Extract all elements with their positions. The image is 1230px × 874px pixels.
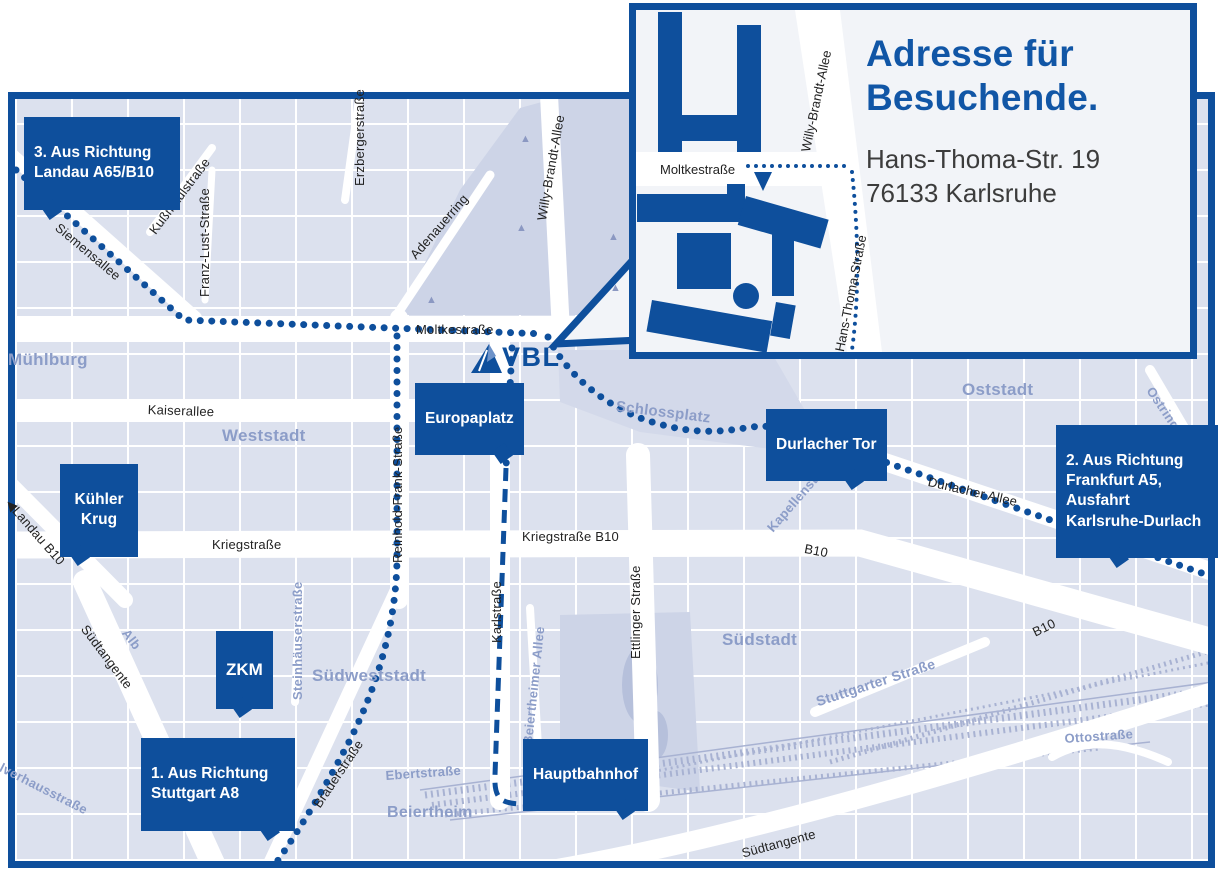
street-label-kaiserallee: Kaiserallee bbox=[147, 402, 214, 419]
district-label-schlossplatz: Schlossplatz bbox=[615, 398, 712, 426]
badge-pointer bbox=[69, 545, 90, 566]
page: { "inset": { "title": "Adresse für\nBesu… bbox=[0, 0, 1230, 874]
route2-badge: 2. Aus Richtung Frankfurt A5, Ausfahrt K… bbox=[1056, 425, 1218, 558]
street-label-brauerstrasse: Brauerstraße bbox=[310, 737, 366, 810]
district-label-weststadt: Weststadt bbox=[222, 426, 306, 446]
badge-pointer bbox=[231, 697, 252, 718]
zkm-badge-label: ZKM bbox=[226, 660, 263, 679]
street-label-landau-b10: ◀Landau B10 bbox=[2, 496, 68, 569]
street-label-siemensallee: Siemensallee bbox=[52, 220, 123, 283]
tree-icon: ▲ bbox=[426, 294, 437, 306]
badge-pointer bbox=[1108, 547, 1129, 568]
inset-street-label-moltkestrasse: Moltkestraße bbox=[660, 162, 735, 177]
street-label-stuttgarter-strasse: Stuttgarter Straße bbox=[814, 656, 937, 710]
badge-pointer bbox=[41, 199, 62, 220]
europaplatz-badge-label: Europaplatz bbox=[425, 410, 514, 427]
badge-pointer bbox=[259, 820, 280, 841]
street-label-ottostrasse: Ottostraße bbox=[1064, 726, 1134, 746]
label-alb-river: Alb bbox=[119, 626, 144, 652]
street-label-adenauerring: Adenauerring bbox=[407, 191, 471, 262]
street-label-steinhaeuserstrasse: Steinhäuserstraße bbox=[290, 581, 305, 700]
street-label-pulverhausstrasse: lverhausstraße bbox=[0, 760, 90, 817]
zkm-badge: ZKM bbox=[216, 631, 273, 709]
street-label-b10-south: B10 bbox=[1030, 616, 1058, 640]
route1-badge: 1. Aus Richtung Stuttgart A8 bbox=[141, 738, 295, 831]
hauptbahnhof-badge-label: Hauptbahnhof bbox=[533, 766, 638, 783]
inset-title: Adresse für Besuchende. bbox=[866, 32, 1099, 119]
street-label-kriegstrasse: Kriegstraße bbox=[212, 537, 281, 552]
durlacher-tor-badge-label: Durlacher Tor bbox=[776, 436, 877, 453]
durlacher-tor-badge: Durlacher Tor bbox=[766, 409, 887, 481]
badge-pointer bbox=[843, 469, 864, 490]
vbl-logo-text: VBL bbox=[502, 342, 561, 373]
street-label-franz-lust-strasse: Franz-Lust-Straße bbox=[197, 188, 212, 297]
tree-icon: ▲ bbox=[608, 231, 619, 243]
street-label-durlacher-allee: Durlacher Allee bbox=[927, 474, 1019, 509]
street-label-beiertheimer-allee: Beiertheimer Allee bbox=[520, 626, 547, 746]
badge-pointer bbox=[614, 799, 635, 820]
street-label-erzbergerstrasse: Erzbergerstraße bbox=[352, 89, 367, 186]
tree-icon: ▲ bbox=[516, 222, 527, 234]
district-label-oststadt: Oststadt bbox=[962, 380, 1033, 400]
tree-icon: ▲ bbox=[520, 133, 531, 145]
street-label-ettlinger-strasse: Ettlinger Straße bbox=[628, 565, 643, 659]
tree-icon: ▲ bbox=[610, 282, 621, 294]
district-label-muehlburg: Mühlburg bbox=[8, 350, 88, 370]
badge-pointer bbox=[492, 443, 513, 464]
route2-badge-label: 2. Aus Richtung Frankfurt A5, Ausfahrt K… bbox=[1066, 452, 1201, 529]
kuehler-krug-badge-label: Kühler Krug bbox=[74, 491, 123, 528]
district-label-suedstadt: Südstadt bbox=[722, 630, 797, 650]
street-label-kriegstrasse-b10: Kriegstraße B10 bbox=[522, 529, 619, 544]
district-label-suedweststadt: Südweststadt bbox=[312, 666, 426, 686]
europaplatz-badge: Europaplatz bbox=[415, 383, 524, 455]
route1-badge-label: 1. Aus Richtung Stuttgart A8 bbox=[151, 765, 268, 802]
district-label-beiertheim: Beiertheim bbox=[387, 804, 473, 822]
route3-badge-label: 3. Aus Richtung Landau A65/B10 bbox=[34, 144, 154, 181]
visitor-address-inset: Moltkestraße Willy-Brandt-Allee Hans-Tho… bbox=[629, 3, 1197, 359]
street-label-moltkestrasse: Moltkestraße bbox=[416, 322, 494, 337]
inset-address: Hans-Thoma-Str. 19 76133 Karlsruhe bbox=[866, 143, 1100, 211]
street-label-reinhold-frank-strasse: Reinhold-Frank-Straße bbox=[390, 427, 405, 563]
route3-badge: 3. Aus Richtung Landau A65/B10 bbox=[24, 117, 180, 210]
street-label-suedtangente-sued: Südtangente bbox=[740, 826, 817, 860]
kuehler-krug-badge: Kühler Krug bbox=[60, 464, 138, 557]
street-label-ebertstrasse: Ebertstraße bbox=[385, 763, 461, 783]
street-label-willy-brandt-allee: Willy-Brandt-Allee bbox=[534, 114, 567, 222]
street-label-b10-east: B10 bbox=[803, 541, 829, 560]
street-label-karlstrasse: Karlstraße bbox=[489, 581, 504, 643]
hauptbahnhof-badge: Hauptbahnhof bbox=[523, 739, 648, 811]
